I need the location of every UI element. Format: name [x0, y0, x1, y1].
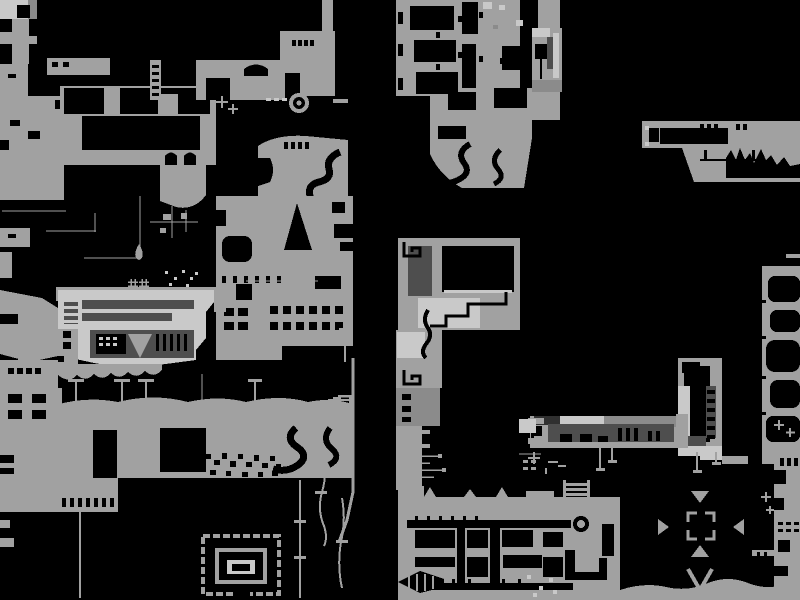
rubble [238, 454, 243, 459]
terrain-window [28, 131, 40, 139]
stem-light [397, 332, 425, 358]
stem-notch [402, 406, 411, 412]
ledge-bar [333, 99, 348, 103]
table-top [280, 425, 316, 430]
terrain-window [0, 140, 9, 150]
city-tooth [451, 516, 454, 520]
tower-window [309, 306, 317, 314]
cavern-pier [104, 88, 120, 114]
tower-tick [277, 276, 281, 283]
light-dot [499, 5, 505, 10]
tower-tick [233, 276, 237, 283]
tower-window [238, 322, 248, 330]
gallery-dash [743, 124, 747, 130]
cave-tooth [70, 498, 74, 507]
city-dot [527, 575, 531, 579]
wall-pocket [774, 470, 786, 484]
engine-band [82, 300, 194, 309]
cliff-bump-left [0, 32, 12, 44]
dock-hatch [730, 464, 733, 472]
beacon-block [519, 419, 536, 433]
tram-window [580, 434, 592, 442]
rubble [230, 461, 236, 467]
ladder-rung [566, 483, 587, 486]
ladder-rung [566, 488, 587, 491]
tram-window [598, 436, 608, 442]
tower-window [270, 322, 278, 330]
city-corridor [407, 520, 571, 528]
tram-tooth [656, 431, 660, 441]
rubble [254, 455, 259, 461]
engine-comb [156, 334, 159, 351]
gallery-cap [645, 126, 649, 130]
city-ring-core [577, 520, 585, 528]
ladder-rail [563, 480, 566, 500]
cell-hatch [707, 408, 715, 412]
door-tick [500, 58, 504, 64]
core-cell [106, 343, 110, 346]
ladder-rail [587, 480, 590, 500]
wall-pocket [778, 540, 790, 552]
shaft-tick [762, 412, 766, 415]
station-slit [398, 12, 403, 24]
rubble [226, 471, 231, 476]
tower-window [270, 306, 278, 314]
sparkle-dot [186, 284, 189, 287]
hang-post-cap [712, 462, 721, 465]
city-tooth [502, 579, 505, 583]
cave-tooth [94, 498, 98, 507]
upper-lobe-stem [322, 0, 333, 33]
city-corridor-low [428, 583, 573, 590]
bunk-window [32, 394, 46, 403]
rubble [272, 471, 278, 476]
shaft-tick [762, 336, 766, 339]
sparkle-dot [165, 271, 168, 274]
shore-dash [35, 368, 41, 374]
relay-box [160, 228, 166, 233]
game-map-canvas [0, 0, 800, 600]
tower-window [322, 322, 330, 330]
ladder-rung [152, 79, 159, 82]
wall-cross-icon [766, 506, 774, 514]
tower-window [283, 306, 291, 314]
city-dot [549, 578, 553, 582]
cliff-blob [0, 64, 28, 96]
ladder-rung [152, 65, 159, 68]
station-slit [398, 78, 403, 90]
shaft-tick [762, 300, 766, 303]
tower-band-notch [315, 276, 341, 289]
rubble [242, 472, 248, 477]
gallery-cell [649, 128, 659, 142]
sparkle-dot [169, 283, 172, 286]
cave-tooth [102, 498, 106, 507]
dart-hatch [424, 574, 426, 591]
cliff-blob-notch [8, 74, 16, 78]
station-room [416, 72, 458, 94]
line-tick [294, 556, 306, 559]
terrain-window [10, 120, 20, 126]
upper-lobe-foot [300, 72, 335, 96]
core-cell [113, 343, 117, 346]
city-bump [464, 489, 476, 497]
wall-cross-icon [761, 492, 771, 502]
core-cell [99, 337, 103, 340]
lobe-vent [292, 40, 296, 46]
city-room [543, 557, 563, 577]
cell-hatch [707, 399, 715, 403]
station-shaft [462, 44, 476, 88]
shaft-blob [766, 340, 800, 372]
rubble [210, 470, 216, 475]
hang-post-cap [608, 460, 617, 463]
city-bump [424, 487, 436, 497]
door-tick [521, 40, 525, 46]
beacon-tooth [526, 433, 529, 438]
city-room [467, 530, 488, 548]
gallery-dash [736, 124, 740, 130]
city-tooth [518, 579, 521, 583]
shaft-blob [766, 416, 800, 442]
shore-dash [26, 368, 32, 374]
shore-notch [0, 314, 18, 324]
reactor-shelf [444, 290, 512, 293]
stem-d [396, 426, 422, 490]
ladder-rung [566, 498, 587, 501]
cavern-room [82, 116, 200, 150]
edge-bit [0, 252, 12, 278]
dock-light [700, 446, 722, 460]
city-room [503, 555, 542, 568]
gallery-pipe [752, 150, 755, 160]
hang-post-cap [138, 379, 154, 382]
door-tick [458, 52, 462, 58]
antenna-node [442, 468, 446, 472]
edge-tick [786, 254, 800, 258]
city-room [415, 557, 455, 567]
sparkle-dot [174, 277, 177, 280]
station-room [502, 46, 536, 70]
cell-hatch [707, 426, 715, 430]
cliff-bump-right [26, 36, 37, 44]
cave-tooth [62, 498, 66, 507]
sparkle-dot [182, 270, 185, 273]
beacon-dash [523, 460, 528, 463]
edge-bit [0, 538, 14, 547]
cell-notch [682, 362, 700, 373]
cavern-arch [165, 153, 177, 166]
hang-post-cap [693, 470, 702, 473]
marker-dash [282, 98, 287, 101]
tower-window [322, 306, 330, 314]
wall-tooth [778, 529, 783, 532]
city-tooth [463, 516, 466, 520]
tower-window [296, 306, 304, 314]
stem-notch [402, 417, 411, 422]
deck-gap [236, 284, 252, 300]
lobe-tooth [298, 142, 302, 149]
station-room [410, 6, 454, 30]
station-room [414, 40, 456, 62]
porthole [63, 331, 71, 338]
upper-lobe [280, 31, 335, 73]
station-slit [398, 44, 403, 56]
tower-room [334, 224, 354, 238]
city-dot [539, 586, 543, 590]
marker-dash [266, 98, 271, 101]
tower-window [238, 308, 248, 316]
door-tick [436, 64, 440, 70]
cell-hatch [707, 390, 715, 394]
porthole [63, 342, 71, 349]
station-shaft [462, 2, 478, 34]
station-room [448, 92, 476, 110]
bunk-window [8, 394, 22, 403]
engine-comb [170, 334, 173, 351]
core-cell [113, 337, 117, 340]
wall-spur-tooth [757, 552, 760, 556]
city-tooth [452, 579, 455, 583]
light-dot [516, 20, 523, 26]
tower-tick [244, 276, 248, 283]
cave-channel [160, 428, 206, 472]
tram-link [676, 414, 688, 448]
cell-hatch [707, 435, 715, 439]
engine-band [82, 313, 172, 321]
hang-post-cap [114, 379, 130, 382]
dock-hatch [736, 464, 739, 472]
antenna-node [438, 454, 442, 458]
outpost-light-col [553, 33, 559, 78]
lobe-tooth [291, 142, 295, 149]
bunk-window [32, 410, 46, 419]
tower-window [296, 322, 304, 330]
vault-core-dark [232, 564, 250, 571]
shore-wedge [0, 290, 58, 362]
wall-tooth [778, 522, 783, 525]
reactor-room [442, 246, 514, 292]
tower-notch [216, 210, 226, 226]
edge-tick [339, 328, 351, 331]
wall-spur-tooth [764, 552, 767, 556]
hang-post-cap [40, 379, 56, 382]
city-dot [533, 593, 537, 597]
shaft-blob [770, 310, 800, 332]
ladder-rung [566, 493, 587, 496]
tower-room [332, 202, 345, 213]
wall-spur [752, 550, 774, 556]
tower-tick [255, 276, 259, 283]
lobe-vent [304, 40, 308, 46]
cave-channel [93, 430, 117, 478]
tram-bracket [528, 438, 546, 444]
stem-base [398, 486, 424, 500]
city-tooth [415, 516, 418, 520]
shaft-blob [768, 276, 800, 302]
door-tick [458, 16, 462, 22]
lobe-tooth [305, 142, 309, 149]
hang-post-cap [596, 468, 605, 471]
tower-bottom-cut [282, 346, 353, 360]
tower-window [283, 322, 291, 330]
engine-comb [163, 334, 166, 351]
gallery-comb [707, 124, 711, 132]
game-map-screen [0, 0, 800, 600]
city-room [502, 530, 533, 547]
shaft-tick [762, 376, 766, 379]
tower-tick [222, 276, 226, 283]
t-post-cap [248, 379, 262, 382]
rubble [206, 454, 211, 459]
stem-spur [422, 444, 430, 448]
tower-window [309, 322, 317, 330]
line-tick [294, 520, 306, 523]
city-dot [553, 590, 557, 594]
tram-tooth [634, 428, 638, 441]
tower-window [224, 322, 234, 330]
cave-tooth [110, 498, 114, 507]
outpost-base [532, 80, 562, 92]
rubble [214, 460, 220, 465]
arrow-left-icon [733, 519, 744, 535]
sparkle-dot [190, 277, 193, 280]
city-tooth [475, 516, 478, 520]
wall-tooth [794, 522, 799, 525]
engine-comb [184, 334, 187, 351]
dock-ledge [722, 456, 748, 464]
dock-hatch [742, 464, 745, 472]
ledge-blob [160, 165, 206, 208]
core-cell [106, 337, 110, 340]
edge-bit [0, 520, 10, 528]
dart-hatch [408, 576, 410, 590]
arrow-down-icon [691, 491, 709, 503]
city-room [543, 532, 563, 547]
rubble [270, 456, 275, 461]
city-tooth [427, 516, 430, 520]
gallery-comb [700, 124, 704, 132]
door-tick [436, 32, 440, 38]
pocket-tick [597, 538, 601, 541]
shore-dash [17, 368, 23, 374]
arrow-right-icon [658, 519, 669, 535]
city-tooth [468, 579, 471, 583]
light-dot [493, 25, 498, 29]
wall-pocket [774, 498, 784, 510]
station-cut [396, 96, 430, 104]
core-cell [99, 343, 103, 346]
wall-pocket [774, 566, 788, 576]
city-pocket [602, 524, 614, 556]
city-room [415, 530, 455, 548]
relay-box [163, 214, 171, 220]
rubble [222, 453, 227, 459]
beacon-dash [531, 467, 536, 470]
gallery-comb [714, 124, 718, 132]
city-room [467, 557, 488, 577]
tower-window [335, 306, 343, 314]
compass-bracket-icon [688, 513, 714, 539]
ladder-rung [152, 86, 159, 89]
shore-dash [8, 368, 14, 374]
tram-tooth [618, 428, 622, 441]
station-room [494, 88, 527, 108]
tram-tooth [626, 428, 630, 441]
platform-window [63, 62, 69, 67]
dart-hatch [416, 574, 418, 591]
cavern-upper-tunnel [64, 88, 210, 114]
engine-stripe [64, 302, 78, 306]
pocket-tick [597, 546, 601, 549]
wall-tooth [786, 529, 791, 532]
lobe-tooth [284, 142, 288, 149]
marker-dash [274, 98, 279, 101]
city-tooth [439, 516, 442, 520]
city-bump [496, 487, 508, 497]
beacon-dash [531, 460, 536, 463]
shaft-blob [770, 380, 800, 408]
platform-window [52, 62, 58, 67]
wall-comb [787, 458, 791, 466]
arrow-up-icon [691, 545, 709, 557]
pocket-tick [597, 530, 601, 533]
cave-tooth [78, 498, 82, 507]
outpost-door [535, 44, 547, 59]
surface-block-window [17, 5, 30, 18]
dart-hatch [432, 576, 434, 589]
wall-tooth [794, 529, 799, 532]
arm-notch [8, 234, 16, 238]
wall-comb [780, 458, 784, 466]
rubble [276, 464, 281, 469]
rubble [246, 462, 252, 467]
outpost-roof [532, 28, 550, 37]
light-dot [483, 2, 492, 9]
sparkle-dot [195, 272, 198, 275]
lobe-vent [310, 40, 314, 46]
bunk-window [8, 410, 22, 419]
cell-hatch [707, 417, 715, 421]
rubble [262, 463, 268, 468]
ladder-rung [152, 93, 159, 96]
apron-room [438, 126, 466, 139]
cavern-arch [184, 153, 196, 166]
tower-tick [266, 276, 270, 283]
gallery-pipe [704, 150, 707, 160]
ladder-rung [152, 72, 159, 75]
door-tick [479, 56, 483, 62]
stem-spur [422, 430, 430, 434]
hang-post-cap [68, 379, 84, 382]
wall-comb [794, 458, 798, 466]
beacon-tooth [531, 433, 534, 438]
gallery-cap [645, 142, 649, 146]
stem-notch [402, 394, 411, 400]
wall-tooth [786, 522, 791, 525]
city-shaft [457, 528, 465, 590]
vault-gap [236, 592, 250, 598]
cave-tooth [86, 498, 90, 507]
eye-dot-icon [297, 101, 302, 106]
cave-window [0, 468, 14, 474]
tram-window [560, 434, 572, 442]
engine-stripe [64, 316, 78, 320]
door-tick [479, 12, 483, 18]
table-leg [306, 430, 310, 448]
rubble [258, 472, 263, 477]
beacon-tooth [521, 433, 524, 438]
